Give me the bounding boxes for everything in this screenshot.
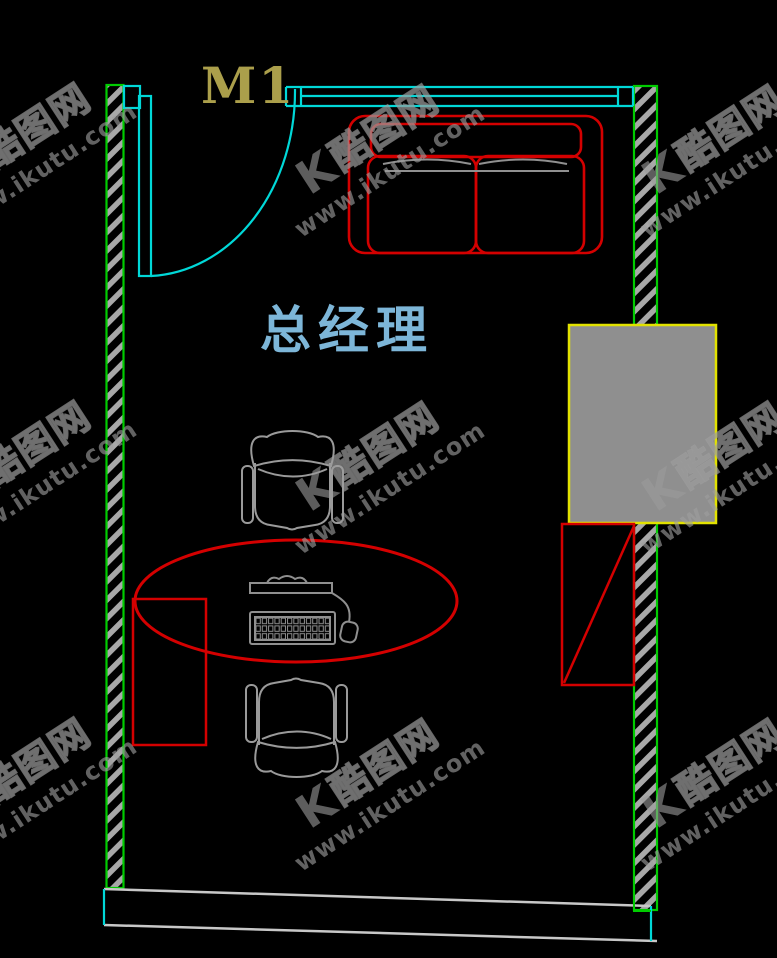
chair-back-cushion	[258, 469, 327, 477]
door-label: M1	[201, 56, 295, 115]
mouse	[339, 621, 359, 644]
side-unit-diagonal	[564, 526, 634, 683]
chair-armrest-right	[332, 466, 343, 523]
office-chair	[242, 431, 343, 530]
room-label: 总经理	[260, 289, 434, 363]
monitor-stand	[267, 576, 307, 583]
chair-headrest	[251, 431, 334, 466]
computer	[250, 576, 359, 644]
sofa	[349, 116, 602, 253]
side-unit	[562, 524, 634, 685]
floorplan-drawing	[0, 0, 777, 958]
sofa-backrest	[371, 124, 581, 157]
cad-floorplan-canvas: M1 总经理 K 酷图网 www.ikutu.com K 酷图网 www.iku…	[0, 0, 777, 958]
door-swing-arc	[151, 89, 295, 276]
cabinet	[569, 325, 716, 523]
office-chair-visitor	[246, 679, 347, 778]
door-jamb	[124, 86, 140, 108]
monitor	[250, 583, 332, 593]
top-window	[286, 87, 633, 106]
left-wall	[107, 85, 124, 888]
door-leaf	[139, 96, 151, 276]
keyboard-keys	[255, 617, 330, 640]
bottom-wall	[104, 889, 657, 941]
chair-armrest-left	[242, 466, 253, 523]
